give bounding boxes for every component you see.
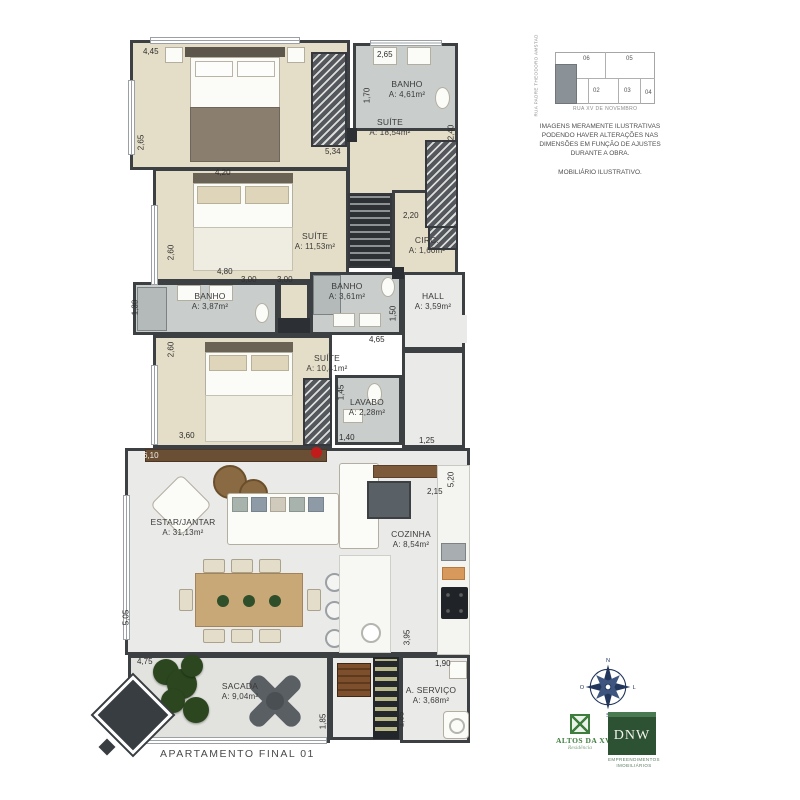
room-area: A: 3,87m² (170, 302, 250, 312)
cutting-board (442, 567, 465, 580)
entry-door-gap (459, 315, 467, 343)
room-name: LAVABO (350, 397, 384, 407)
room-area: A: 10,41m² (287, 364, 367, 374)
room-label-sacada: SACADA A: 9,04m² (200, 681, 280, 702)
sink (359, 313, 381, 327)
floor-plan: BANHO A: 4,61m² SUÍTE A: 18,54m² SUÍTE A… (115, 35, 475, 765)
table-plant (217, 595, 229, 607)
slat-shelf (337, 663, 371, 697)
sofa-pillow (270, 497, 286, 512)
dining-chair (203, 559, 225, 573)
room-area: A: 3,61m² (307, 292, 387, 302)
window (370, 40, 442, 46)
dnw-logo-text: DNW (614, 728, 650, 744)
room-label-circ: CIRC. A: 1,60m² (387, 235, 467, 256)
dim-label: 1,50 (388, 306, 397, 322)
dining-chair (231, 559, 253, 573)
logo-dnw: DNW EMPREENDIMENTOS IMOBILIÁRIOS (608, 712, 660, 769)
dim-label: 4,80 (217, 267, 233, 276)
kitchen-shelf (373, 465, 441, 478)
room-label-suite-2: SUÍTE A: 11,53m² (275, 231, 355, 252)
sofa-pillow (308, 497, 324, 512)
dim-label: 4,75 (137, 657, 153, 666)
dim-label: 2,60 (166, 245, 175, 261)
room-area: A: 31,13m² (143, 528, 223, 538)
room-name: SACADA (222, 681, 258, 691)
room-area: A: 8,54m² (371, 540, 451, 550)
dim-label: 2,65 (377, 50, 393, 59)
room-name: A. SERVIÇO (406, 685, 457, 695)
keyplan-unit: 06 (583, 56, 590, 62)
sideboard (145, 449, 327, 462)
dim-label: 1,85 (318, 714, 327, 730)
logo-altos-da-xv: ALTOS DA XV Residência (556, 714, 604, 751)
room-name: CIRC. (415, 235, 439, 245)
room-label-banho-1: BANHO A: 4,61m² (367, 79, 447, 100)
sofa-pillow (289, 497, 305, 512)
pillow (209, 355, 247, 371)
laundry-tub (443, 711, 469, 739)
room-name: ESTAR/JANTAR (151, 517, 216, 527)
dim-label: 3,00 (241, 275, 257, 284)
dim-label: 4,65 (369, 335, 385, 344)
compass-rose: N L S O (580, 656, 636, 718)
room-area: A: 11,53m² (275, 242, 355, 252)
room-label-estar-jantar: ESTAR/JANTAR A: 31,13m² (143, 517, 223, 538)
dim-label: 2,40 (446, 125, 455, 141)
wall-column (392, 267, 404, 279)
window (151, 205, 158, 285)
dim-label: 1,70 (362, 88, 371, 104)
room-label-banho-3: BANHO A: 3,87m² (170, 291, 250, 312)
dim-label: 5,05 (121, 610, 130, 626)
keyplan-unit: 03 (624, 88, 631, 94)
dim-label: 1,85 (396, 712, 405, 728)
pillow (237, 61, 275, 77)
keyplan-unit: 02 (593, 88, 600, 94)
dim-label: 2,15 (427, 487, 443, 496)
window (128, 80, 135, 155)
closet-suite-1 (311, 52, 347, 147)
toilet (255, 303, 269, 323)
room-name: COZINHA (391, 529, 431, 539)
dim-label: 1,30 (130, 300, 139, 316)
keyplan-unit: 04 (645, 90, 652, 96)
dnw-logo-box: DNW (608, 712, 656, 755)
dining-chair (307, 589, 321, 611)
table-plant (269, 595, 281, 607)
sink (407, 47, 431, 65)
dnw-logo-subtext: EMPREENDIMENTOS IMOBILIÁRIOS (608, 757, 660, 769)
room-label-suite-3: SUÍTE A: 10,41m² (287, 353, 367, 374)
dim-label: 3,60 (179, 431, 195, 440)
keyplan-highlight-unit (555, 64, 577, 104)
dim-label: 1,45 (336, 385, 345, 401)
dim-label: 2,20 (403, 211, 419, 220)
room-label-a-servico: A. SERVIÇO A: 3,68m² (391, 685, 471, 706)
room-name: BANHO (331, 281, 362, 291)
room-label-hall: HALL A: 3,59m² (393, 291, 473, 312)
dining-chair (179, 589, 193, 611)
disclaimer-line-1: IMAGENS MERAMENTE ILUSTRATIVAS PODENDO H… (538, 122, 662, 158)
compass-w: O (580, 685, 585, 691)
sofa-pillow (232, 497, 248, 512)
bed-headboard (205, 342, 293, 352)
key-plan: 06 05 02 03 04 RUA PADRE THEODORO AMSTAD… (528, 42, 668, 114)
dim-label: 5,34 (325, 147, 341, 156)
wall-column (278, 318, 310, 333)
disclaimer: IMAGENS MERAMENTE ILUSTRATIVAS PODENDO H… (538, 122, 662, 177)
dim-label: 4,45 (143, 47, 159, 56)
dim-label: 3,95 (402, 630, 411, 646)
dining-chair (259, 629, 281, 643)
keyplan-unit: 05 (626, 56, 633, 62)
window (151, 365, 158, 445)
dim-label: 2,65 (136, 135, 145, 151)
dining-chair (259, 559, 281, 573)
room-name: BANHO (391, 79, 422, 89)
room-area: A: 9,04m² (200, 692, 280, 702)
pillow (251, 355, 289, 371)
altos-logo-text: ALTOS DA XV (556, 736, 604, 745)
island-sink (361, 623, 381, 643)
street-label-bottom: RUA XV DE NOVEMBRO (573, 106, 637, 112)
dim-label: 4,20 (215, 168, 231, 177)
bed-blanket (190, 107, 280, 162)
altos-logo-subtext: Residência (556, 745, 604, 751)
disclaimer-line-2: MOBILIÁRIO ILUSTRATIVO. (538, 168, 662, 177)
apartment-title: APARTAMENTO FINAL 01 (160, 748, 315, 760)
shower (137, 287, 167, 331)
table-plant (243, 595, 255, 607)
room-area: A: 3,59m² (393, 302, 473, 312)
sofa-pillow (251, 497, 267, 512)
bed-headboard (193, 173, 293, 183)
pillow (197, 186, 241, 204)
room-name: SUÍTE (302, 231, 328, 241)
dining-chair (231, 629, 253, 643)
room-name: HALL (422, 291, 444, 301)
altos-leaf-icon (570, 714, 590, 734)
room-name: SUÍTE (314, 353, 340, 363)
room-area: A: 2,28m² (327, 408, 407, 418)
nightstand (287, 47, 305, 63)
washing-machine (449, 661, 467, 679)
dim-label: 1,25 (419, 436, 435, 445)
nightstand (165, 47, 183, 63)
cooktop (441, 587, 468, 619)
compass-e: L (633, 685, 636, 691)
room-area: A: 18,54m² (350, 128, 430, 138)
window (150, 37, 300, 44)
pillow (245, 186, 289, 204)
dim-label: 3,00 (277, 275, 293, 284)
bed-blanket (205, 395, 293, 442)
closet-suite-1-right (425, 140, 458, 228)
room-area: A: 4,61m² (367, 90, 447, 100)
dim-label: 6,10 (143, 451, 159, 460)
room-name: SUÍTE (377, 117, 403, 127)
room-label-cozinha: COZINHA A: 8,54m² (371, 529, 451, 550)
room-label-banho-2: BANHO A: 3,61m² (307, 281, 387, 302)
dim-label: 1,90 (435, 659, 451, 668)
dim-label: 2,60 (166, 342, 175, 358)
sink (333, 313, 355, 327)
compass-n: N (606, 658, 610, 664)
balcony-railing (131, 737, 327, 744)
dim-label: 1,40 (339, 433, 355, 442)
bed-headboard (185, 47, 285, 57)
corner-column-small (99, 739, 116, 756)
room-name: BANHO (194, 291, 225, 301)
kitchen-cabinet (367, 481, 411, 519)
street-label-left: RUA PADRE THEODORO AMSTAD (534, 37, 539, 117)
room-label-suite-1: SUÍTE A: 18,54m² (350, 117, 430, 138)
room-area: A: 1,60m² (387, 246, 467, 256)
dim-label: 5,20 (446, 472, 455, 488)
room-hall-corridor (402, 350, 465, 448)
flower-vase (311, 447, 322, 458)
pillow (195, 61, 233, 77)
room-area: A: 3,68m² (391, 696, 471, 706)
dining-chair (203, 629, 225, 643)
